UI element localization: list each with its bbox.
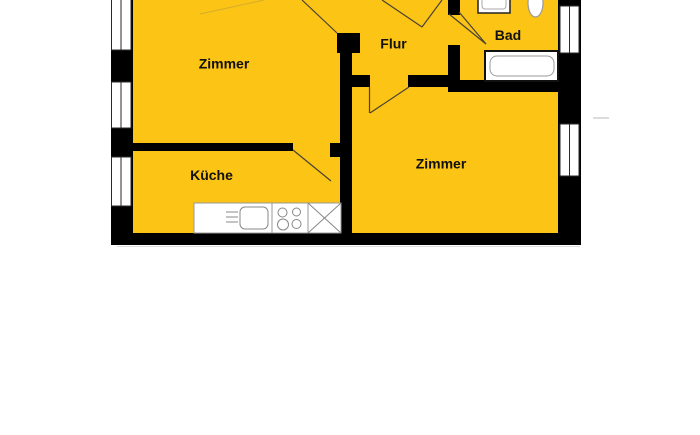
window-symbol: [112, 82, 132, 128]
wall-bottom: [111, 233, 581, 245]
floor-plan-page: Zimmer Flur Bad Küche Zimmer: [0, 0, 700, 435]
room-label-zimmer-left: Zimmer: [199, 56, 250, 72]
wall-bad-stub-top: [448, 0, 460, 15]
room-label-kueche: Küche: [190, 167, 233, 183]
wall-zimmer-door-jamb-left: [352, 75, 370, 87]
washbasin-icon: [478, 0, 510, 13]
window-symbol: [112, 0, 132, 50]
kitchen-counter: [194, 203, 341, 233]
window-symbol: [112, 157, 132, 206]
bathtub-icon: [485, 51, 558, 81]
wall-kueche-door-jamb: [330, 143, 341, 157]
room-label-flur: Flur: [380, 36, 407, 52]
room-label-zimmer-right: Zimmer: [416, 156, 467, 172]
window-symbol: [560, 6, 579, 53]
window-symbol: [560, 124, 579, 176]
wall-kueche-top: [133, 143, 293, 151]
floor-plan-drawing: Zimmer Flur Bad Küche Zimmer: [0, 0, 700, 435]
wall-bad-vertical: [448, 45, 460, 92]
room-label-bad: Bad: [495, 27, 521, 43]
wall-center-vertical: [340, 33, 352, 233]
kitchen-sink-icon: [240, 207, 268, 229]
